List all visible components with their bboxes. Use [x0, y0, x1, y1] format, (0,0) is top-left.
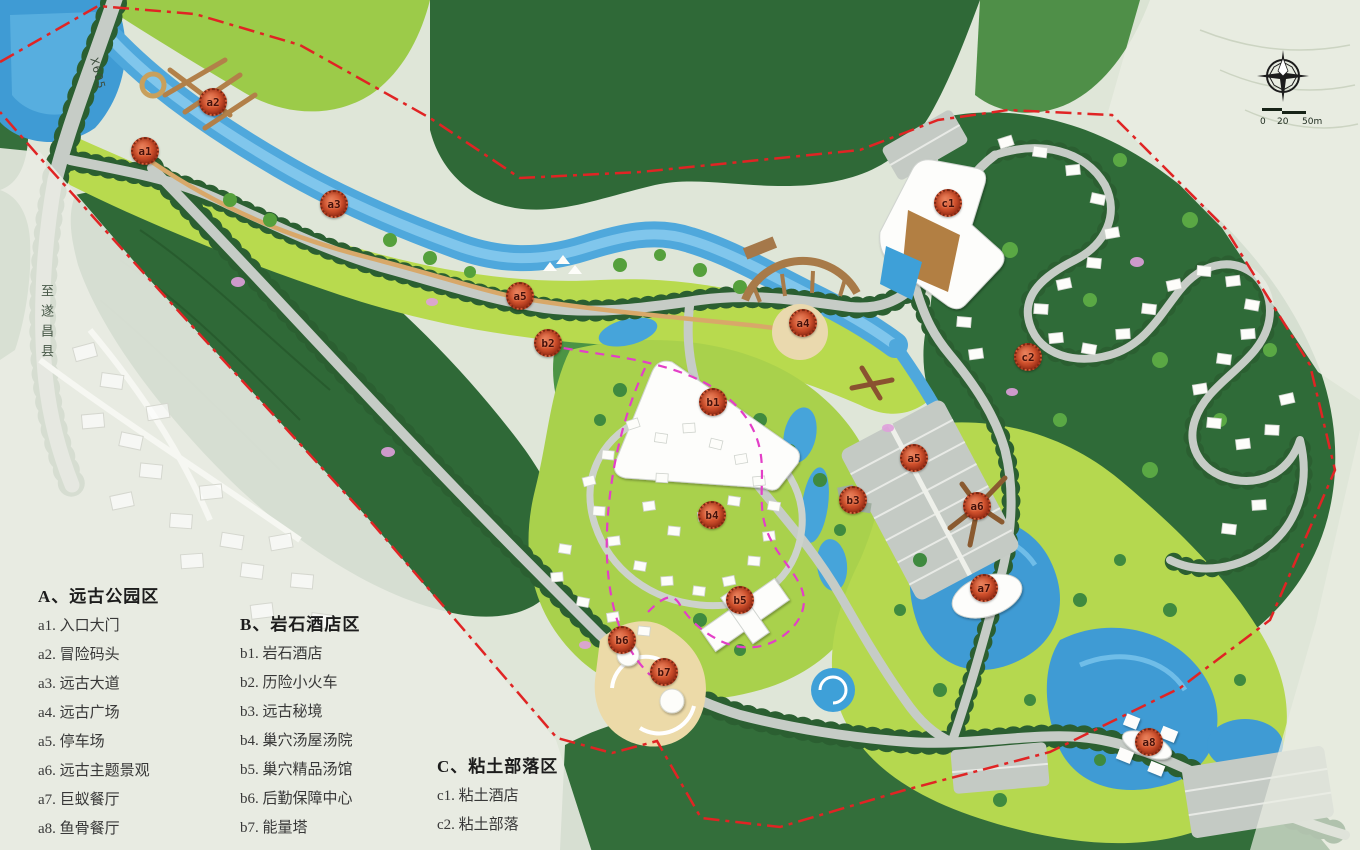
map-marker-b1[interactable]: b1	[699, 388, 727, 416]
map-marker-a1[interactable]: a1	[131, 137, 159, 165]
map-marker-b3[interactable]: b3	[839, 486, 867, 514]
map-marker-b6[interactable]: b6	[608, 626, 636, 654]
scale-tick-0: 0	[1260, 117, 1266, 127]
master-plan-canvas: a1 a2 a3 a5 b2 a4 c1 c2 b1 a5 b3 a6 b4 a…	[0, 0, 1360, 850]
legend-item: a7. 巨蚁餐厅	[38, 786, 159, 815]
map-marker-a6[interactable]: a6	[963, 492, 991, 520]
legend-item: b6. 后勤保障中心	[240, 785, 360, 814]
scale-tick-20: 20	[1277, 117, 1288, 127]
road-label-to-county: 至遂昌县	[36, 284, 55, 364]
legend-item: a6. 远古主题景观	[38, 757, 159, 786]
legend-item: b4. 巢穴汤屋汤院	[240, 727, 360, 756]
site-plan-artwork	[0, 0, 1360, 850]
map-marker-a4[interactable]: a4	[789, 309, 817, 337]
legend-item: a2. 冒险码头	[38, 641, 159, 670]
legend-item: a8. 鱼骨餐厅	[38, 815, 159, 844]
map-marker-a8[interactable]: a8	[1135, 728, 1163, 756]
legend-item: a4. 远古广场	[38, 699, 159, 728]
map-marker-c2[interactable]: c2	[1014, 343, 1042, 371]
legend-item: b1. 岩石酒店	[240, 640, 360, 669]
legend-item: b7. 能量塔	[240, 814, 360, 843]
legend-c-title: C、粘土部落区	[437, 752, 558, 777]
compass-rose-icon	[1248, 48, 1318, 104]
map-marker-a5-west[interactable]: a5	[506, 282, 534, 310]
legend-item: b3. 远古秘境	[240, 698, 360, 727]
map-marker-a3[interactable]: a3	[320, 190, 348, 218]
map-marker-b4[interactable]: b4	[698, 501, 726, 529]
map-marker-b2[interactable]: b2	[534, 329, 562, 357]
scale-bar-segments	[1262, 108, 1306, 115]
legend-b-title: B、岩石酒店区	[240, 610, 360, 635]
map-marker-b5[interactable]: b5	[726, 586, 754, 614]
legend-item: a5. 停车场	[38, 728, 159, 757]
scale-tick-50m: 50m	[1302, 117, 1322, 127]
legend-item: b2. 历险小火车	[240, 669, 360, 698]
legend-zone-a: A、远古公园区 a1. 入口大门 a2. 冒险码头 a3. 远古大道 a4. 远…	[38, 582, 159, 844]
map-marker-a2[interactable]: a2	[199, 88, 227, 116]
legend-item: a3. 远古大道	[38, 670, 159, 699]
legend-item: a1. 入口大门	[38, 612, 159, 641]
legend-item: c1. 粘土酒店	[437, 782, 558, 811]
legend-zone-b: B、岩石酒店区 b1. 岩石酒店 b2. 历险小火车 b3. 远古秘境 b4. …	[240, 610, 360, 843]
legend-zone-c: C、粘土部落区 c1. 粘土酒店 c2. 粘土部落	[437, 752, 558, 840]
map-marker-a7[interactable]: a7	[970, 574, 998, 602]
legend-item: b5. 巢穴精品汤馆	[240, 756, 360, 785]
map-marker-b7[interactable]: b7	[650, 658, 678, 686]
legend-item: c2. 粘土部落	[437, 811, 558, 840]
legend-a-title: A、远古公园区	[38, 582, 159, 607]
map-marker-a5-east[interactable]: a5	[900, 444, 928, 472]
map-marker-c1[interactable]: c1	[934, 189, 962, 217]
scale-bar: 0 20 50m	[1262, 108, 1322, 129]
